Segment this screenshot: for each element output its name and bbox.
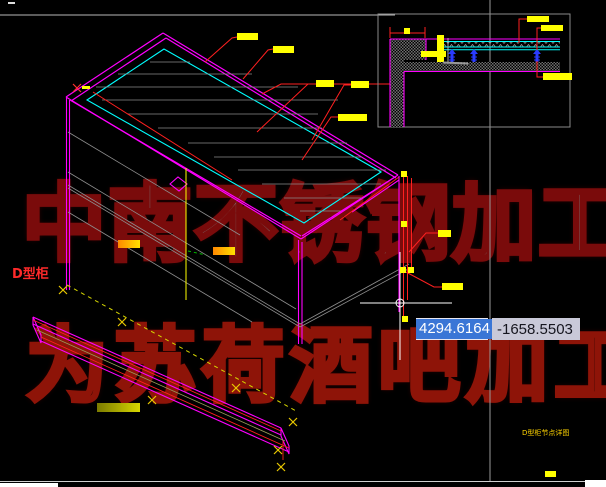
grip-handle[interactable] xyxy=(401,221,407,227)
viewport-frame xyxy=(0,0,606,487)
screw-icons xyxy=(448,49,541,62)
dynamic-input-y[interactable]: -1658.5503 xyxy=(492,318,580,340)
base-plinth xyxy=(33,317,289,460)
dimension-leaders xyxy=(205,37,442,287)
cabinet-top-face xyxy=(66,33,398,239)
cabinet-axonometric-view xyxy=(33,33,556,477)
drawing-canvas[interactable]: 中南不锈钢加工厂 为苏荷酒吧加工生产 xyxy=(0,0,606,487)
shadow-arrow xyxy=(443,63,468,64)
blip-markers xyxy=(59,286,297,471)
insulation-zigzag xyxy=(444,42,560,50)
detail-caption: D型柜节点详图 xyxy=(522,428,569,438)
grip-handle[interactable] xyxy=(402,316,408,322)
grip-handle[interactable] xyxy=(400,267,406,273)
section-detail-view xyxy=(378,14,572,127)
highlighted-dim-text xyxy=(97,240,235,412)
cad-line-art xyxy=(0,0,606,487)
grip-handle[interactable] xyxy=(401,171,407,177)
grip-handle[interactable] xyxy=(408,267,414,273)
cabinet-type-label: D型柜 xyxy=(12,263,49,282)
dynamic-input-x-value[interactable]: 4294.6164 xyxy=(416,319,492,339)
dim-tick xyxy=(404,28,410,34)
dynamic-input-x[interactable]: 4294.6164 xyxy=(416,318,488,340)
